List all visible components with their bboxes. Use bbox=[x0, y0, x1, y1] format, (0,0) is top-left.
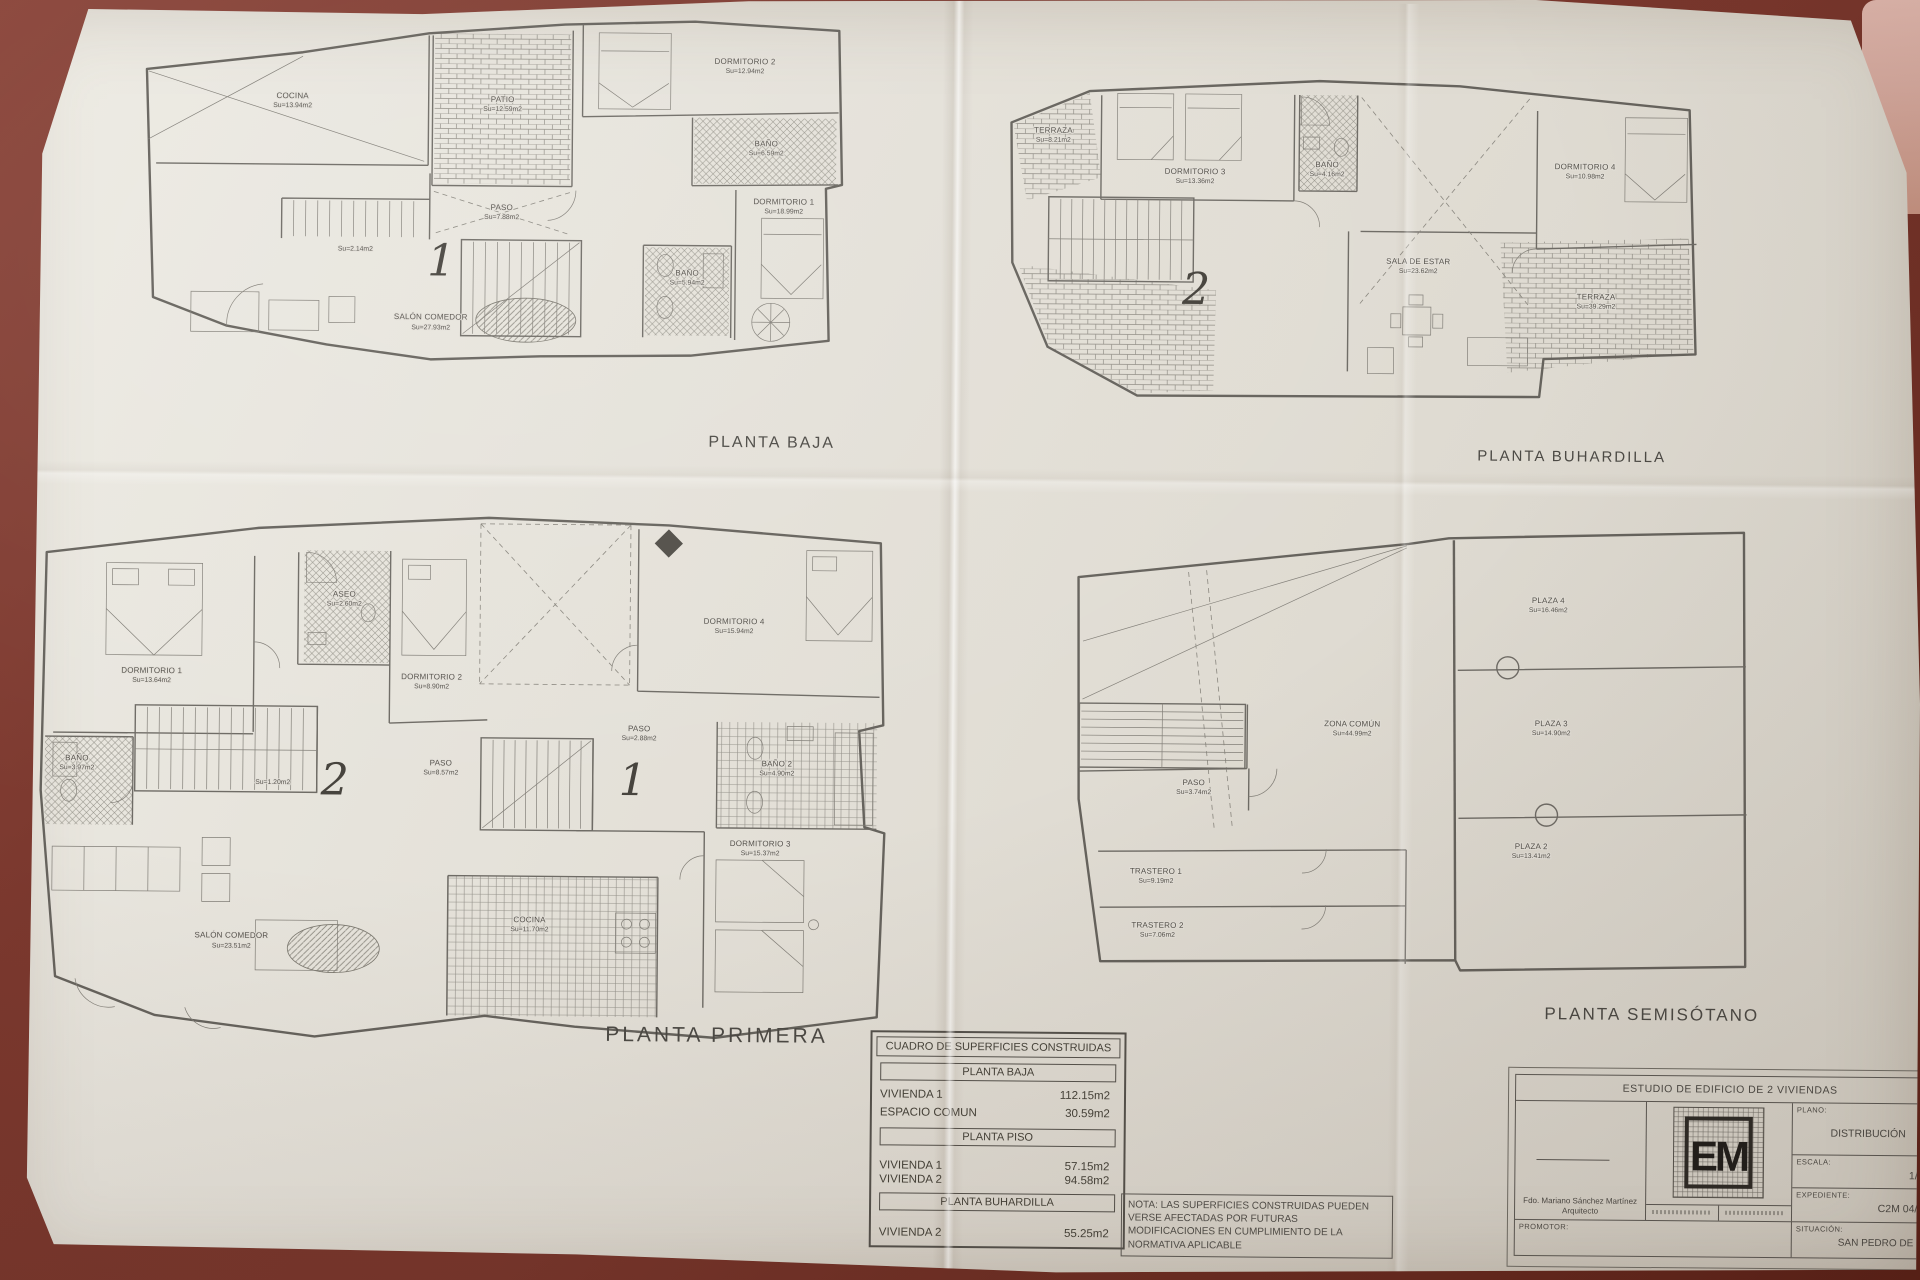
semisotano-stairs bbox=[1079, 703, 1246, 768]
escala-label: ESCALA: bbox=[1796, 1157, 1831, 1166]
note-box: NOTA: LAS SUPERFICIES CONSTRUIDAS PUEDEN… bbox=[1121, 1193, 1394, 1258]
room-area: Su=39.29m2 bbox=[1577, 303, 1616, 310]
room-area: Su=7.06m2 bbox=[1140, 932, 1175, 939]
promotor-label: PROMOTOR: bbox=[1519, 1222, 1569, 1231]
signature-line bbox=[1536, 1159, 1609, 1161]
expediente-value: C2M 04/01 bbox=[1792, 1202, 1920, 1215]
title-block-outer-frame: ESTUDIO DE EDIFICIO DE 2 VIVIENDAS Fdo. … bbox=[1507, 1067, 1920, 1271]
plan-title-baja: PLANTA BAJA bbox=[687, 434, 857, 453]
room-label: DORMITORIO 1 bbox=[753, 197, 814, 207]
row-label: VIVIENDA 2 bbox=[879, 1226, 942, 1239]
room-label: DORMITORIO 3 bbox=[1165, 167, 1226, 177]
room-area: Su=13.64m2 bbox=[132, 677, 171, 684]
surfaces-table-title: CUADRO DE SUPERFICIES CONSTRUIDAS bbox=[876, 1036, 1120, 1058]
credit-cell bbox=[1719, 1206, 1791, 1222]
semisotano-outer-walls bbox=[1075, 527, 1749, 973]
room-area: Su=13.36m2 bbox=[1176, 178, 1215, 185]
room-area: Su=3.97m2 bbox=[59, 764, 94, 771]
room-label: BAÑO bbox=[675, 269, 699, 278]
room-label: PLAZA 4 bbox=[1532, 596, 1565, 605]
promotor-cell: PROMOTOR: bbox=[1515, 1219, 1791, 1257]
semisotano-center-wall bbox=[1450, 540, 1459, 960]
room-label: DORMITORIO 1 bbox=[121, 666, 182, 676]
row-label: VIVIENDA 1 bbox=[880, 1088, 943, 1101]
project-title: ESTUDIO DE EDIFICIO DE 2 VIVIENDAS bbox=[1516, 1075, 1920, 1105]
row-value: 94.58m2 bbox=[1064, 1175, 1109, 1187]
room-label: PASO bbox=[430, 758, 453, 767]
room-label: SALÓN COMEDOR bbox=[394, 312, 468, 322]
primera-room-labels: DORMITORIO 1 Su=13.64m2 ASEO Su=2.60m2 D… bbox=[58, 587, 796, 954]
escala-cell: ESCALA: 1/50 bbox=[1792, 1155, 1920, 1189]
floorplan-planta-semisotano: PLAZA 4 Su=16.46m2 ZONA COMÚN Su=44.99m2… bbox=[945, 498, 1780, 1025]
room-area: Su=23.62m2 bbox=[1399, 268, 1438, 275]
room-area: Su=9.19m2 bbox=[1138, 878, 1173, 885]
unit-number-2: 2 bbox=[320, 754, 349, 805]
row-label: VIVIENDA 2 bbox=[879, 1173, 942, 1186]
room-area: Su=13.41m2 bbox=[1512, 853, 1551, 860]
situacion-value: SAN PEDRO DE bbox=[1792, 1237, 1920, 1249]
unit-number-1: 1 bbox=[619, 755, 647, 806]
signature-cell: Fdo. Mariano Sánchez Martínez Arquitecto bbox=[1515, 1101, 1646, 1220]
section-header-planta-baja: PLANTA BAJA bbox=[880, 1062, 1116, 1082]
room-area: Su=8.21m2 bbox=[1036, 137, 1071, 144]
room-area: Su=4.90m2 bbox=[759, 770, 794, 777]
architect-title: Arquitecto bbox=[1515, 1206, 1645, 1217]
room-label: COCINA bbox=[277, 91, 310, 100]
floorplan-planta-primera: DORMITORIO 1 Su=13.64m2 ASEO Su=2.60m2 D… bbox=[14, 490, 899, 1058]
plan-sheet-paper: COCINA Su=13.94m2 PATIO Su=12.59m2 DORMI… bbox=[0, 0, 1920, 1280]
primera-void-area bbox=[480, 524, 684, 686]
room-label: PASO bbox=[490, 203, 513, 212]
escala-value: 1/50 bbox=[1792, 1169, 1920, 1182]
title-block: ESTUDIO DE EDIFICIO DE 2 VIVIENDAS Fdo. … bbox=[1514, 1074, 1920, 1260]
room-area: Su=7.88m2 bbox=[484, 214, 519, 221]
table-row: VIVIENDA 1 112.15m2 bbox=[876, 1085, 1120, 1105]
room-label: PLAZA 2 bbox=[1515, 842, 1548, 851]
room-area: Su=18.99m2 bbox=[764, 208, 803, 215]
room-label: PLAZA 3 bbox=[1535, 719, 1568, 728]
expediente-cell: EXPEDIENTE: C2M 04/01 bbox=[1792, 1188, 1920, 1222]
room-area: Su=8.57m2 bbox=[423, 769, 458, 776]
buhardilla-stairs bbox=[1048, 197, 1194, 282]
room-label: TRASTERO 2 bbox=[1131, 921, 1184, 930]
room-area: Su=16.46m2 bbox=[1529, 607, 1568, 614]
room-label: COCINA bbox=[513, 915, 546, 924]
room-area: Su=12.59m2 bbox=[483, 106, 522, 113]
em-logo: EM bbox=[1672, 1106, 1765, 1199]
architect-name: Fdo. Mariano Sánchez Martínez Arquitecto bbox=[1515, 1196, 1645, 1217]
buhardilla-floor-fills bbox=[1011, 92, 1696, 398]
room-label: DORMITORIO 2 bbox=[401, 672, 462, 682]
room-area: Su=4.16m2 bbox=[1310, 171, 1345, 178]
room-area: Su=2.14m2 bbox=[338, 246, 373, 253]
section-header-planta-buhardilla: PLANTA BUHARDILLA bbox=[879, 1192, 1115, 1212]
room-area: Su=27.93m2 bbox=[411, 324, 450, 331]
expediente-label: EXPEDIENTE: bbox=[1796, 1190, 1850, 1199]
primera-stairs bbox=[134, 705, 593, 831]
sheet-content: COCINA Su=13.94m2 PATIO Su=12.59m2 DORMI… bbox=[0, 0, 1920, 1280]
plan-title-primera: PLANTA PRIMERA bbox=[576, 1023, 856, 1049]
room-label: PASO bbox=[1183, 778, 1206, 787]
credit-cell bbox=[1646, 1205, 1719, 1221]
room-area: Su=3.74m2 bbox=[1176, 789, 1211, 796]
plan-title-buhardilla: PLANTA BUHARDILLA bbox=[1457, 447, 1687, 466]
room-label: BAÑO bbox=[1315, 160, 1339, 169]
room-label: BAÑO 2 bbox=[762, 759, 793, 768]
svg-text:EM: EM bbox=[1690, 1132, 1748, 1180]
row-value: 30.59m2 bbox=[1065, 1108, 1110, 1120]
room-label: ZONA COMÚN bbox=[1324, 719, 1380, 728]
situacion-label: SITUACIÓN: bbox=[1796, 1224, 1843, 1233]
room-label: PATIO bbox=[491, 95, 515, 104]
room-area: Su=11.70m2 bbox=[510, 926, 549, 933]
room-area: Su=5.94m2 bbox=[670, 279, 705, 286]
row-label: VIVIENDA 1 bbox=[879, 1159, 942, 1172]
room-label: BAÑO bbox=[755, 139, 779, 148]
room-label: DORMITORIO 2 bbox=[715, 57, 776, 67]
row-value: 112.15m2 bbox=[1060, 1090, 1110, 1102]
photo-scene: COCINA Su=13.94m2 PATIO Su=12.59m2 DORMI… bbox=[0, 0, 1920, 1280]
room-area: Su=1.20m2 bbox=[255, 779, 290, 786]
room-area: Su=14.90m2 bbox=[1532, 730, 1571, 737]
room-label: PASO bbox=[628, 724, 651, 733]
section-header-planta-piso: PLANTA PISO bbox=[880, 1127, 1116, 1147]
semisotano-ramp-lines bbox=[1082, 543, 1406, 702]
room-area: Su=2.60m2 bbox=[327, 600, 362, 607]
table-row: ESPACIO COMUN 30.59m2 bbox=[876, 1103, 1120, 1123]
architect-signed-name: Fdo. Mariano Sánchez Martínez bbox=[1515, 1196, 1645, 1207]
baja-paso-cross bbox=[434, 191, 570, 234]
semisotano-door-arcs bbox=[1247, 769, 1326, 930]
room-label: TERRAZA bbox=[1577, 292, 1616, 301]
room-area: Su=2.88m2 bbox=[622, 735, 657, 742]
situacion-cell: SITUACIÓN: SAN PEDRO DE bbox=[1791, 1221, 1920, 1258]
unit-number-1: 1 bbox=[427, 235, 455, 286]
floorplan-planta-baja: COCINA Su=13.94m2 PATIO Su=12.59m2 DORMI… bbox=[130, 1, 894, 468]
logo-credits-strip bbox=[1646, 1204, 1791, 1221]
row-value: 55.25m2 bbox=[1064, 1228, 1109, 1240]
logo-cell: EM bbox=[1645, 1102, 1792, 1221]
plano-value: DISTRIBUCIÓN bbox=[1793, 1127, 1920, 1140]
surfaces-table: CUADRO DE SUPERFICIES CONSTRUIDAS PLANTA… bbox=[869, 1030, 1127, 1249]
room-area: Su=8.90m2 bbox=[414, 683, 449, 690]
row-value: 57.15m2 bbox=[1065, 1161, 1110, 1173]
column bbox=[1535, 804, 1557, 826]
plano-label: PLANO: bbox=[1797, 1105, 1827, 1114]
column bbox=[1497, 657, 1519, 679]
floorplan-planta-buhardilla: TERRAZA Su=8.21m2 DORMITORIO 3 Su=13.36m… bbox=[987, 48, 1731, 474]
room-area: Su=15.94m2 bbox=[715, 628, 754, 635]
row-label: ESPACIO COMUN bbox=[880, 1106, 977, 1119]
unit-number-2: 2 bbox=[1181, 264, 1210, 315]
room-area: Su=6.59m2 bbox=[749, 150, 784, 157]
room-label: TRASTERO 1 bbox=[1130, 866, 1183, 875]
room-label: ASEO bbox=[333, 590, 356, 599]
room-area: Su=44.99m2 bbox=[1333, 730, 1372, 737]
title-block-right-column: PLANO: DISTRIBUCIÓN ESCALA: 1/50 EXPEDIE… bbox=[1791, 1103, 1920, 1222]
table-row: VIVIENDA 2 55.25m2 bbox=[875, 1223, 1119, 1243]
room-area: Su=15.37m2 bbox=[741, 850, 780, 857]
room-area: Su=23.51m2 bbox=[212, 942, 251, 949]
room-area: Su=10.98m2 bbox=[1566, 173, 1605, 180]
room-label: BAÑO bbox=[65, 753, 89, 762]
table-row: VIVIENDA 2 94.58m2 bbox=[875, 1172, 1119, 1188]
room-area: Su=12.94m2 bbox=[726, 68, 765, 75]
room-area: Su=13.94m2 bbox=[273, 102, 312, 109]
plano-cell: PLANO: DISTRIBUCIÓN bbox=[1793, 1103, 1920, 1156]
plan-title-semisotano: PLANTA SEMISÓTANO bbox=[1527, 1004, 1777, 1026]
room-label: SALÓN COMEDOR bbox=[194, 930, 268, 940]
room-label: DORMITORIO 4 bbox=[704, 617, 765, 627]
room-label: TERRAZA bbox=[1034, 126, 1073, 135]
room-label: SALA DE ESTAR bbox=[1386, 257, 1450, 267]
room-label: DORMITORIO 4 bbox=[1555, 162, 1616, 172]
room-label: DORMITORIO 3 bbox=[730, 839, 791, 849]
